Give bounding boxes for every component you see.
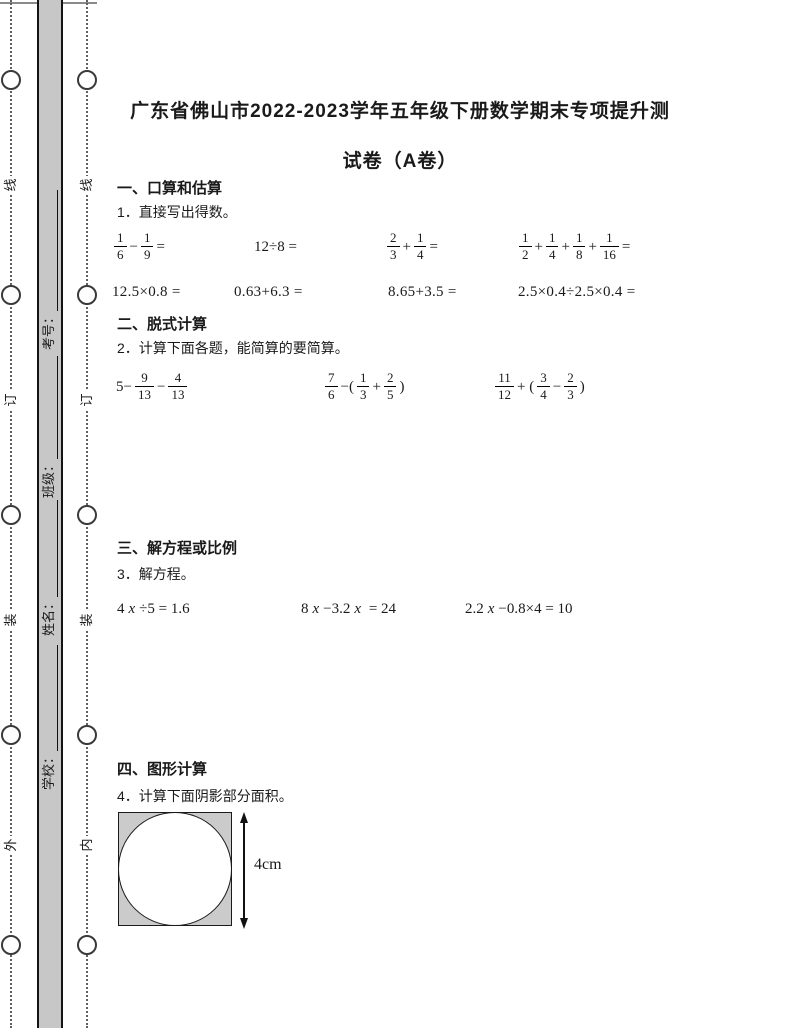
fraction-numerator: 2	[564, 371, 577, 387]
punch-hole	[1, 70, 21, 90]
fraction: 116	[600, 231, 619, 263]
fraction: 76	[325, 371, 338, 403]
instruction-1: 1．直接写出得数。	[117, 202, 237, 222]
dimension-arrow	[240, 812, 248, 929]
punch-hole	[77, 285, 97, 305]
math-expression: 5−913−413	[113, 364, 187, 410]
fold-char: 线	[78, 176, 96, 194]
fraction: 25	[384, 371, 397, 403]
fraction: 413	[168, 371, 187, 403]
punch-hole	[1, 725, 21, 745]
fraction-numerator: 1	[114, 231, 127, 247]
punch-hole	[1, 935, 21, 955]
math-variable: x	[353, 601, 362, 618]
fold-char: 装	[78, 611, 96, 629]
fraction-numerator: 1	[357, 371, 370, 387]
exam-paper-page: 广东省佛山市2022-2023学年五年级下册数学期末专项提升测 试卷（A卷） 一…	[0, 0, 794, 1028]
shaded-square	[118, 812, 232, 926]
math-operator: +	[561, 239, 569, 256]
field-label: 学校：	[40, 751, 58, 790]
math-text: 12.5×0.8 =	[112, 284, 181, 301]
arrow-down-icon	[240, 918, 248, 929]
math-operator: −	[130, 239, 138, 256]
fraction-denominator: 5	[384, 387, 397, 403]
math-operator: =	[429, 239, 437, 256]
arrow-up-icon	[240, 812, 248, 823]
section-heading-4: 四、图形计算	[117, 758, 207, 779]
fraction-denominator: 2	[519, 247, 532, 263]
math-operator: =	[622, 239, 630, 256]
field-label: 考号：	[40, 311, 58, 350]
math-expression: 1112+ (34−23)	[495, 364, 588, 410]
field-label: 姓名：	[40, 597, 58, 636]
fold-char: 订	[78, 391, 96, 409]
dimension-label: 4cm	[254, 856, 282, 874]
math-variable: x	[487, 601, 496, 618]
fraction-numerator: 9	[135, 371, 154, 387]
math-variable: x	[312, 601, 321, 618]
fraction: 913	[135, 371, 154, 403]
fraction-denominator: 4	[546, 247, 559, 263]
fraction-denominator: 3	[564, 387, 577, 403]
fraction-denominator: 3	[387, 247, 400, 263]
math-expression: 12+14+18+116=	[519, 224, 633, 270]
math-variable: x	[128, 601, 137, 618]
fraction: 18	[573, 231, 586, 263]
math-expression: 12÷8 =	[251, 224, 300, 270]
field-blank-line	[43, 645, 58, 751]
fraction-numerator: 1	[546, 231, 559, 247]
student-field: 姓名：	[38, 500, 58, 636]
math-operator: + (	[517, 379, 534, 396]
fold-char: 装	[2, 611, 20, 629]
fraction-denominator: 16	[600, 247, 619, 263]
math-operator: )	[399, 379, 404, 396]
math-operator: +	[535, 239, 543, 256]
fold-char: 内	[78, 836, 96, 854]
fraction-denominator: 6	[325, 387, 338, 403]
page-title: 广东省佛山市2022-2023学年五年级下册数学期末专项提升测	[100, 96, 700, 123]
fraction-denominator: 3	[357, 387, 370, 403]
fold-char: 线	[2, 176, 20, 194]
math-operator: 8	[301, 601, 309, 618]
student-field: 学校：	[38, 645, 58, 790]
math-operator: )	[580, 379, 585, 396]
math-operator: = 24	[365, 601, 396, 618]
math-operator: 12÷8 =	[254, 239, 297, 256]
field-label: 班级：	[40, 459, 58, 498]
fraction-numerator: 1	[600, 231, 619, 247]
fraction: 23	[387, 231, 400, 263]
fraction-numerator: 2	[384, 371, 397, 387]
math-operator: 2.2	[465, 601, 484, 618]
punch-hole	[77, 70, 97, 90]
fold-char: 外	[2, 836, 20, 854]
math-expression: 23+14=	[387, 224, 441, 270]
fraction-numerator: 1	[141, 231, 154, 247]
fraction: 1112	[495, 371, 514, 403]
fraction: 34	[537, 371, 550, 403]
field-blank-line	[43, 190, 58, 311]
punch-hole	[77, 935, 97, 955]
fraction: 14	[414, 231, 427, 263]
math-expression: 12.5×0.8 =	[112, 281, 181, 303]
section-heading-2: 二、脱式计算	[117, 313, 207, 334]
fraction-denominator: 8	[573, 247, 586, 263]
math-expression: 2.5×0.4÷2.5×0.4 =	[518, 281, 635, 303]
fraction-denominator: 4	[537, 387, 550, 403]
section-heading-3: 三、解方程或比例	[117, 537, 237, 558]
math-operator: +	[403, 239, 411, 256]
math-expression: 8.65+3.5 =	[388, 281, 457, 303]
math-expression: 16−19=	[114, 224, 168, 270]
fraction-numerator: 2	[387, 231, 400, 247]
math-operator: 5−	[116, 379, 132, 396]
instruction-4: 4．计算下面阴影部分面积。	[117, 786, 293, 806]
math-text: 8.65+3.5 =	[388, 284, 457, 301]
fold-char: 订	[2, 391, 20, 409]
student-field: 班级：	[38, 356, 58, 498]
math-expression: 76−(13+25)	[325, 364, 407, 410]
fraction: 13	[357, 371, 370, 403]
fraction: 19	[141, 231, 154, 263]
punch-hole	[77, 505, 97, 525]
fraction: 23	[564, 371, 577, 403]
inscribed-circle	[118, 812, 232, 926]
math-operator: −(	[341, 379, 354, 396]
math-operator: −	[157, 379, 165, 396]
fraction-numerator: 1	[519, 231, 532, 247]
fraction-numerator: 7	[325, 371, 338, 387]
fraction-denominator: 9	[141, 247, 154, 263]
instruction-2: 2．计算下面各题，能简算的要简算。	[117, 338, 349, 358]
fraction-numerator: 4	[168, 371, 187, 387]
punch-hole	[77, 725, 97, 745]
field-blank-line	[43, 356, 58, 459]
fraction-denominator: 13	[135, 387, 154, 403]
math-operator: =	[156, 239, 164, 256]
math-text: 2.5×0.4÷2.5×0.4 =	[518, 284, 635, 301]
math-expression: 0.63+6.3 =	[234, 281, 303, 303]
fraction: 12	[519, 231, 532, 263]
math-operator: −	[553, 379, 561, 396]
math-operator: −3.2	[323, 601, 350, 618]
math-expression: 4x÷5 = 1.6	[114, 597, 193, 621]
punch-hole	[1, 285, 21, 305]
fraction-denominator: 12	[495, 387, 514, 403]
fraction-denominator: 6	[114, 247, 127, 263]
student-field: 考号：	[38, 190, 58, 350]
fraction-numerator: 1	[414, 231, 427, 247]
punch-hole	[1, 505, 21, 525]
math-operator: 4	[117, 601, 125, 618]
fraction: 16	[114, 231, 127, 263]
fraction-denominator: 13	[168, 387, 187, 403]
math-operator: −0.8×4 = 10	[498, 601, 572, 618]
fraction-numerator: 3	[537, 371, 550, 387]
math-text: 0.63+6.3 =	[234, 284, 303, 301]
instruction-3: 3．解方程。	[117, 564, 195, 584]
page-subtitle: 试卷（A卷）	[100, 146, 700, 173]
math-operator: +	[588, 239, 596, 256]
arrow-line	[243, 823, 245, 918]
math-operator: +	[372, 379, 380, 396]
fraction: 14	[546, 231, 559, 263]
fraction-denominator: 4	[414, 247, 427, 263]
math-expression: 8x−3.2x = 24	[298, 597, 399, 621]
math-expression: 2.2x−0.8×4 = 10	[462, 597, 576, 621]
fraction-numerator: 11	[495, 371, 514, 387]
fraction-numerator: 1	[573, 231, 586, 247]
math-operator: ÷5 = 1.6	[139, 601, 189, 618]
section-heading-1: 一、口算和估算	[117, 177, 222, 198]
field-blank-line	[43, 500, 58, 597]
